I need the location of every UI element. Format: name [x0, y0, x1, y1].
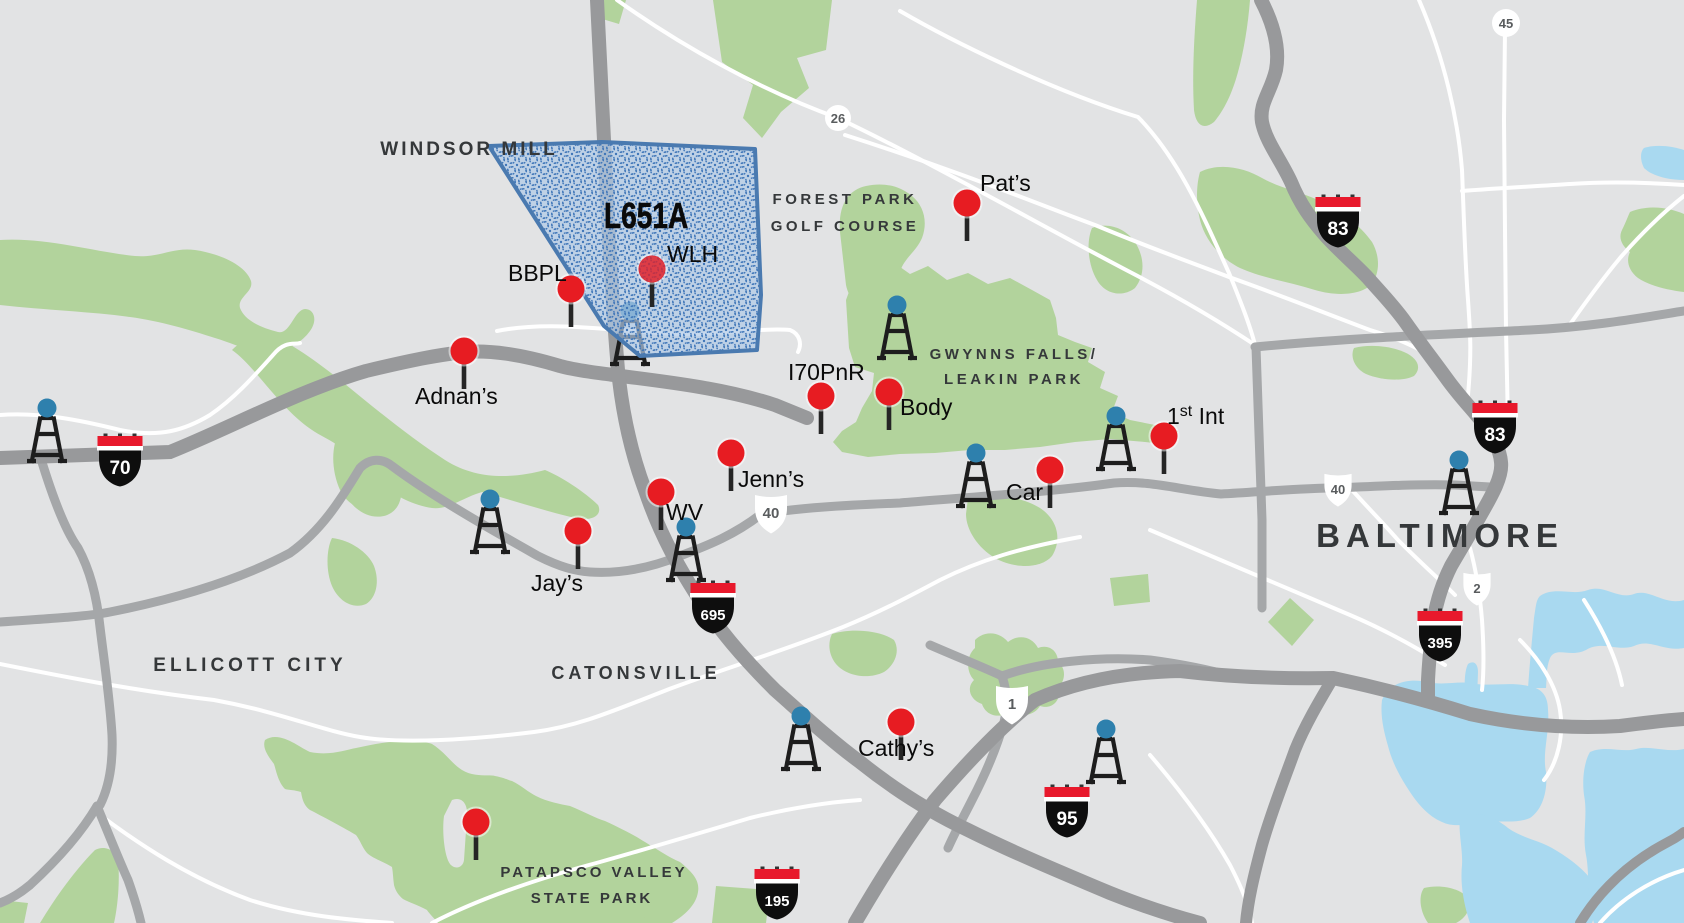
svg-text:Jay’s: Jay’s	[531, 570, 583, 596]
svg-text:GOLF COURSE: GOLF COURSE	[771, 218, 920, 235]
svg-text:395: 395	[1427, 635, 1452, 652]
svg-text:95: 95	[1056, 809, 1078, 830]
svg-text:WLH: WLH	[667, 241, 718, 267]
svg-text:40: 40	[1331, 482, 1345, 497]
svg-text:FOREST PARK: FOREST PARK	[773, 191, 918, 208]
svg-text:1: 1	[1008, 696, 1016, 713]
svg-text:CATONSVILLE: CATONSVILLE	[551, 663, 720, 683]
svg-text:ELLICOTT CITY: ELLICOTT CITY	[153, 655, 346, 676]
svg-text:695: 695	[700, 607, 725, 624]
svg-text:Cathy’s: Cathy’s	[858, 735, 934, 761]
svg-text:PATAPSCO VALLEY: PATAPSCO VALLEY	[500, 864, 687, 881]
svg-text:I70PnR: I70PnR	[788, 359, 865, 385]
svg-text:Body: Body	[900, 394, 953, 420]
svg-text:WV: WV	[666, 499, 704, 525]
svg-text:Jenn’s: Jenn’s	[738, 466, 804, 492]
svg-text:Pat’s: Pat’s	[980, 170, 1031, 196]
svg-text:70: 70	[109, 458, 130, 479]
svg-text:2: 2	[1473, 581, 1480, 596]
svg-text:Adnan’s: Adnan’s	[415, 383, 498, 409]
svg-text:83: 83	[1327, 219, 1348, 240]
svg-text:BALTIMORE: BALTIMORE	[1316, 517, 1564, 554]
svg-text:45: 45	[1499, 16, 1513, 31]
svg-text:GWYNNS FALLS/: GWYNNS FALLS/	[930, 346, 1099, 363]
svg-text:STATE PARK: STATE PARK	[531, 890, 654, 907]
svg-text:L651A: L651A	[604, 196, 688, 236]
svg-text:Car: Car	[1006, 479, 1043, 505]
svg-text:40: 40	[763, 505, 780, 522]
svg-text:1st Int: 1st Int	[1167, 403, 1225, 429]
svg-text:83: 83	[1484, 425, 1505, 446]
svg-text:LEAKIN PARK: LEAKIN PARK	[944, 371, 1084, 388]
svg-text:26: 26	[831, 111, 845, 126]
svg-text:195: 195	[764, 893, 789, 910]
svg-text:WINDSOR MILL: WINDSOR MILL	[380, 139, 557, 160]
svg-text:BBPL: BBPL	[508, 260, 567, 286]
